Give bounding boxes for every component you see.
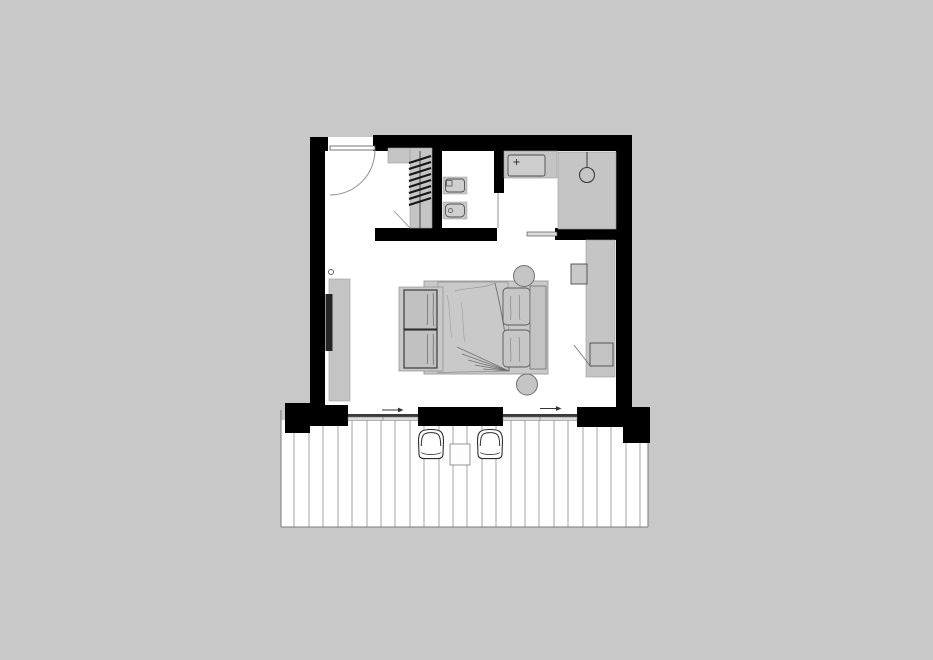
duvet (438, 282, 510, 373)
floor-plan-page (0, 0, 933, 660)
bench-cushion-lower (404, 330, 437, 368)
wall-right (616, 135, 632, 426)
wall-wc-vanity-divider (494, 151, 504, 193)
entry-door-leaf (330, 146, 375, 150)
floor-plan-canvas (0, 0, 933, 660)
round-nightstand-upper (514, 266, 535, 287)
wall-bottom-center-pier (418, 407, 503, 426)
pillow-lower (503, 330, 530, 367)
desk-stool (590, 343, 613, 366)
wall-bath-bottom-right (555, 228, 632, 240)
round-nightstand-lower (517, 374, 538, 395)
bench-cushion-upper (404, 290, 437, 329)
terrace-side-table (450, 444, 470, 465)
deck-floor (281, 420, 648, 527)
wall-bottom-left-pilaster (285, 403, 310, 433)
vanity-basin (508, 155, 545, 176)
wall-bath-bottom-left (375, 228, 497, 241)
pillow-upper (503, 288, 530, 325)
terrace-deck (281, 410, 648, 527)
slider-track-right-rail (503, 414, 577, 417)
terrace-door-opening-left (348, 407, 418, 415)
slider-track-left-rail (348, 414, 418, 417)
desk-tv-shelf (571, 264, 587, 284)
bath-sliding-door-leaf (527, 232, 557, 236)
wall-tv (326, 294, 333, 351)
wall-left (310, 137, 325, 412)
wall-bottom-right-pilaster (623, 407, 650, 443)
headboard (530, 286, 546, 369)
wall-bottom-band-left (310, 405, 348, 426)
toilet-bowl (446, 179, 465, 192)
wall-wardrobe-wc-divider (432, 148, 442, 240)
wardrobe-shelf (388, 148, 410, 163)
shower-head (580, 168, 595, 183)
